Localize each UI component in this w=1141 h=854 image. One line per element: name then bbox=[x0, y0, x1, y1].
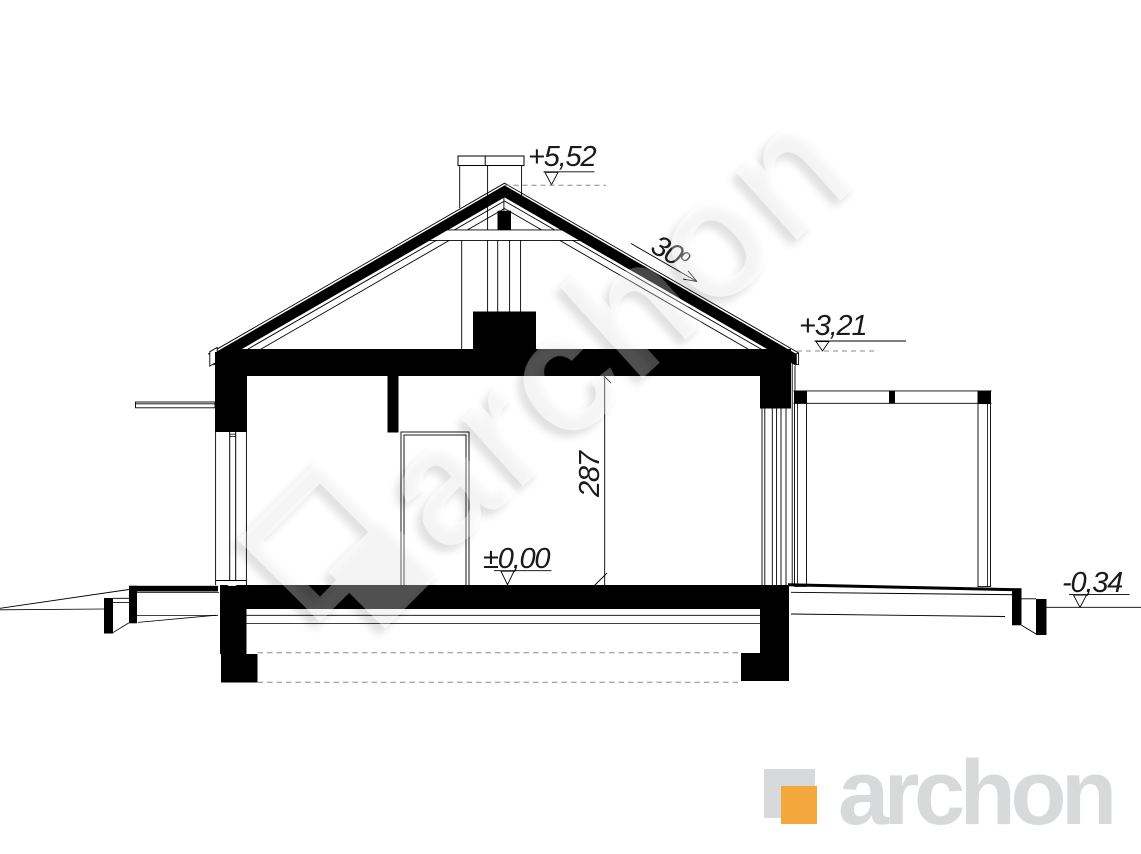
svg-text:+5,52: +5,52 bbox=[528, 141, 596, 173]
svg-text:archon: archon bbox=[838, 742, 1112, 844]
svg-text:+3,21: +3,21 bbox=[799, 310, 866, 342]
